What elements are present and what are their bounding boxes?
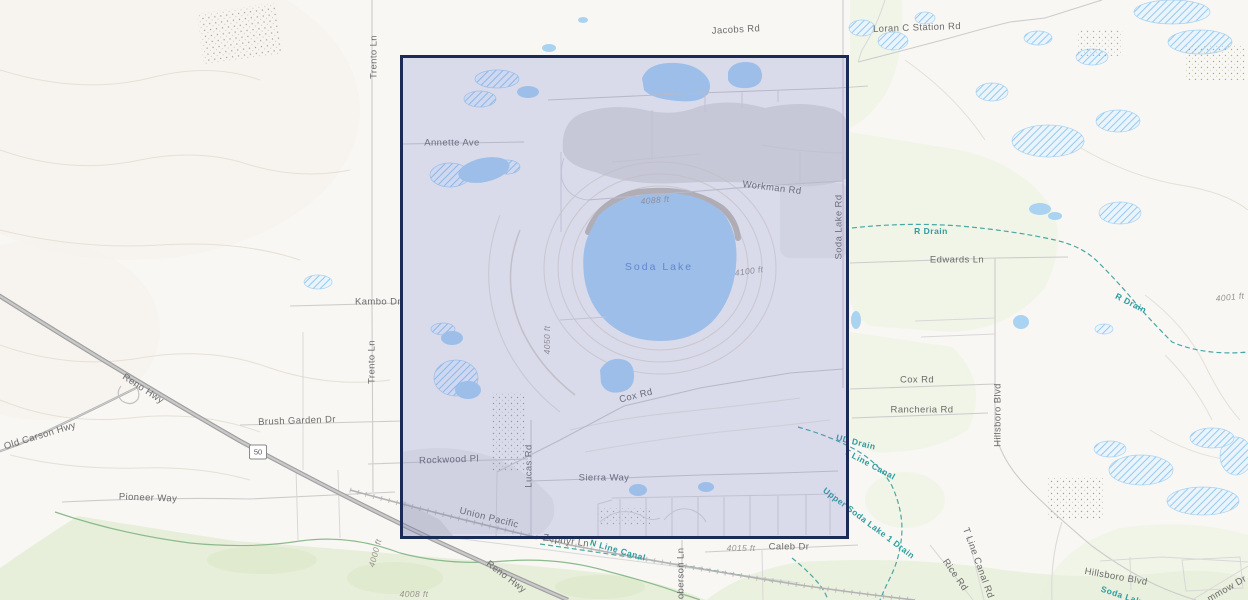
highway-50-shield-label: 50 bbox=[254, 448, 262, 457]
selection-rectangle[interactable] bbox=[400, 55, 849, 539]
highway-50-shield: 50 bbox=[249, 445, 267, 460]
terrain-tint-layer bbox=[0, 0, 360, 420]
map-canvas[interactable]: 50 Jacobs RdLoran C Station RdTrento LnA… bbox=[0, 0, 1248, 600]
